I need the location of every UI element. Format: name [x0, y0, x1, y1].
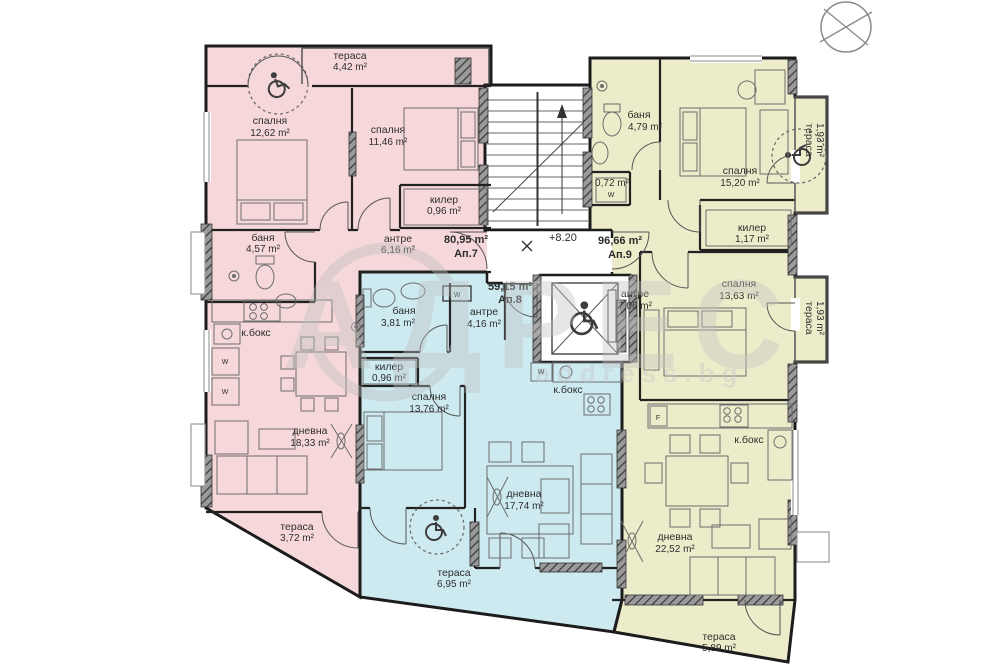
- room-label: баня: [251, 232, 274, 244]
- room-label: килер: [738, 222, 766, 234]
- floor-plan-page: +8.20: [0, 0, 1000, 666]
- washer-label: W: [222, 389, 229, 396]
- room-label: спалня: [723, 165, 757, 177]
- room-area: 4,57 m²: [246, 244, 281, 255]
- room-area: 0,72 m²: [595, 178, 630, 189]
- level-mark: +8.20: [549, 232, 577, 244]
- floor-plan-canvas: +8.20: [0, 0, 1000, 666]
- room-area: 6,95 m²: [437, 579, 472, 590]
- room-area: 11,46 m²: [369, 137, 408, 148]
- room-label: к.бокс: [241, 327, 270, 339]
- room-label: тераса: [803, 123, 815, 156]
- room-label: дневна: [507, 488, 542, 500]
- watermark-site: address.bg: [536, 358, 745, 388]
- room-label: тераса: [280, 521, 313, 533]
- room-label: к.бокс: [734, 434, 763, 446]
- room-label: спалня: [371, 124, 405, 136]
- room-area: 4,42 m²: [333, 62, 368, 73]
- room-area: 4,79 m²: [628, 122, 663, 133]
- room-area: 13,76 m²: [409, 404, 449, 415]
- room-area: 17,74 m²: [504, 501, 544, 512]
- room-label: тераса: [437, 567, 470, 579]
- watermark: АДРЕС address.bg: [283, 248, 798, 396]
- room-label: килер: [430, 194, 458, 206]
- room-label: дневна: [658, 531, 693, 543]
- room-label: спалня: [253, 115, 287, 127]
- fridge-label: F: [656, 415, 660, 422]
- ap9-total-area: 96,66 m²: [598, 235, 642, 247]
- room-label: баня: [627, 109, 650, 121]
- duct-shaft: [455, 58, 471, 84]
- room-label: дневна: [293, 425, 328, 437]
- room-area: 18,33 m²: [290, 438, 330, 449]
- washer-label: W: [608, 192, 615, 199]
- room-label: тераса: [702, 631, 735, 643]
- washer-label: W: [222, 359, 229, 366]
- room-label: тераса: [803, 301, 815, 334]
- ap7-total-area: 80,95 m²: [444, 234, 488, 246]
- room-area: 1,93 m²: [814, 123, 825, 158]
- room-area: 12,62 m²: [250, 128, 290, 139]
- north-compass-icon: [820, 2, 872, 52]
- room-area: 1,93 m²: [814, 301, 825, 336]
- room-area: 22,52 m²: [655, 544, 695, 555]
- room-area: 15,20 m²: [720, 178, 760, 189]
- room-area: 3,72 m²: [280, 533, 315, 544]
- room-label: тераса: [333, 50, 366, 62]
- room-area: 0,96 m²: [427, 206, 462, 217]
- room-area: 1,17 m²: [735, 234, 770, 245]
- room-area: 5,89 m²: [702, 643, 737, 654]
